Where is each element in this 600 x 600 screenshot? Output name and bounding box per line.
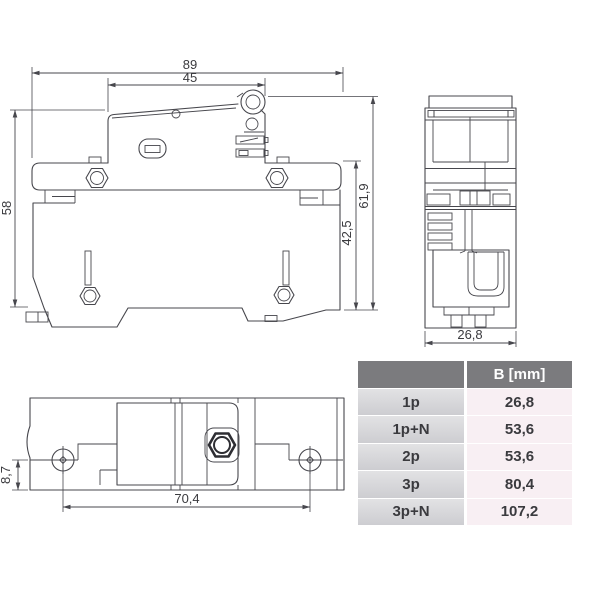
table-row-label: 1p [358, 389, 464, 415]
side-view: 89 45 58 61,9 42,5 [0, 57, 378, 327]
table-row-label: 3p [358, 471, 464, 497]
table-row-value: 107,2 [467, 499, 572, 525]
table-row-value: 26,8 [467, 389, 572, 415]
dim-screw-spacing: 70,4 [174, 491, 199, 506]
vent-slot [428, 223, 452, 230]
dim-screw-offset: 8,7 [0, 466, 13, 484]
slotted-screw [139, 139, 166, 158]
front-view: 26,8 [425, 96, 516, 347]
vent-slot [428, 233, 452, 240]
dim-left-height: 58 [0, 201, 14, 215]
table-row-value: 53,6 [467, 416, 572, 442]
bottom-view: 8,7 70,4 [0, 398, 344, 512]
table-row-value: 53,6 [467, 444, 572, 470]
technical-drawing-page: 89 45 58 61,9 42,5 [0, 0, 600, 600]
table-row-label: 1p+N [358, 416, 464, 442]
table-header-b-mm: B [mm] [467, 361, 572, 388]
dimensions-table: B [mm] 1p 26,8 1p+N 53,6 2p 53,6 3p 80,4… [358, 361, 572, 525]
din-channel-block [117, 403, 238, 485]
table-row-label: 3p+N [358, 499, 464, 525]
vent-slot [428, 243, 452, 250]
din-clip-tab [26, 312, 48, 322]
dim-top-width: 45 [183, 70, 197, 85]
table-header-empty [358, 361, 464, 388]
table-row-value: 80,4 [467, 471, 572, 497]
vent-slot [428, 213, 452, 220]
dim-right-height: 61,9 [356, 183, 371, 208]
dim-inner-height: 42,5 [339, 220, 354, 245]
dim-front-width: 26,8 [457, 327, 482, 342]
table-row-label: 2p [358, 444, 464, 470]
